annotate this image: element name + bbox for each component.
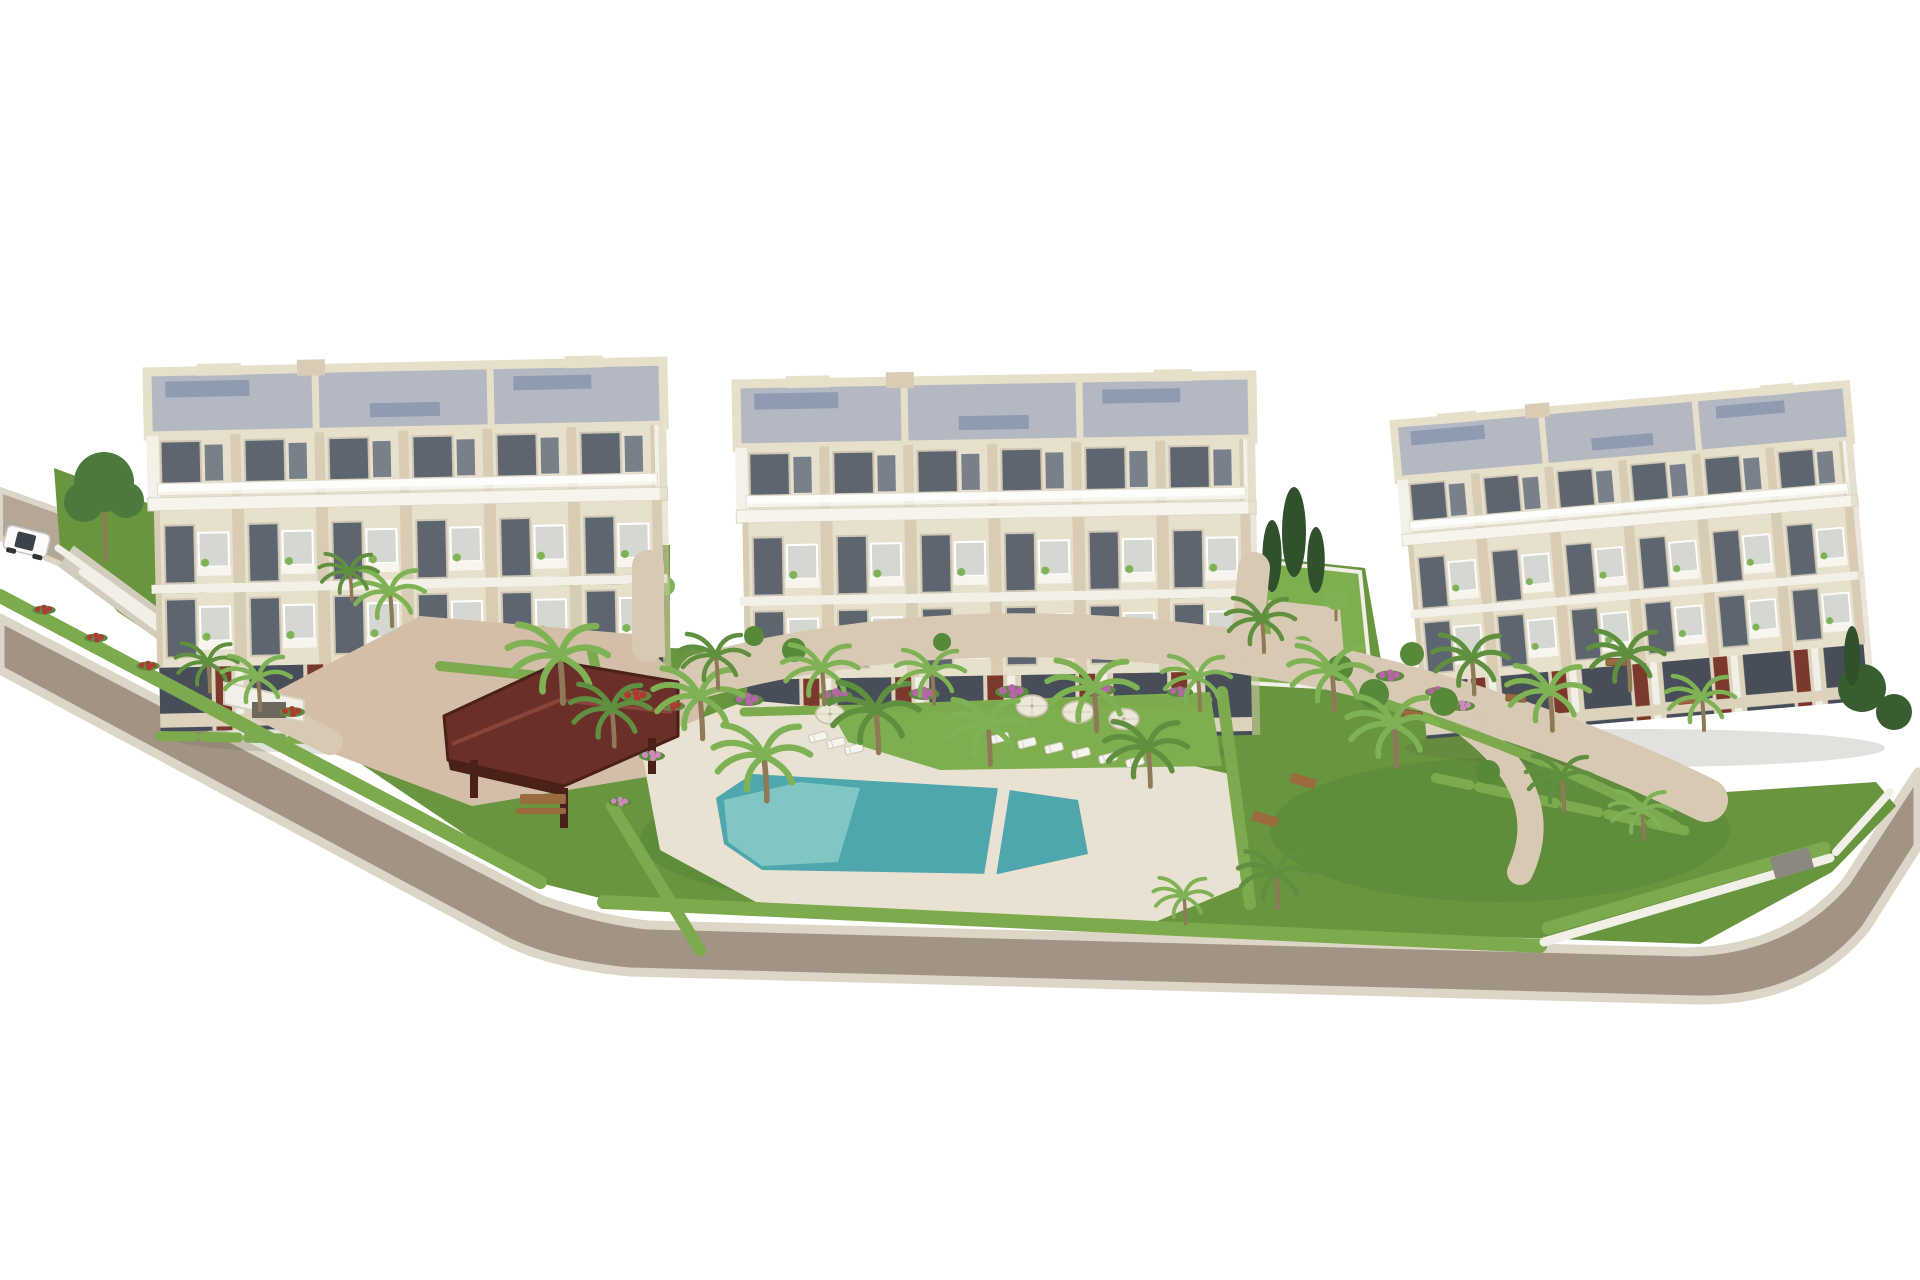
cypress-tree — [1844, 626, 1860, 686]
cypress-tree — [1282, 487, 1306, 577]
shrub — [1400, 642, 1424, 666]
pergola-leg — [470, 760, 478, 798]
tree-trunk — [104, 506, 106, 560]
shrub — [1476, 760, 1500, 784]
shrub — [933, 633, 951, 651]
sun-umbrella — [1016, 695, 1047, 717]
shrub — [744, 626, 764, 646]
picnic-table — [520, 794, 566, 804]
scene-svg — [0, 0, 1920, 1280]
render-canvas — [0, 0, 1920, 1280]
picnic-bench — [516, 808, 566, 814]
tree — [1876, 694, 1912, 730]
shrub — [1430, 688, 1458, 716]
cypress-tree — [1307, 527, 1325, 593]
